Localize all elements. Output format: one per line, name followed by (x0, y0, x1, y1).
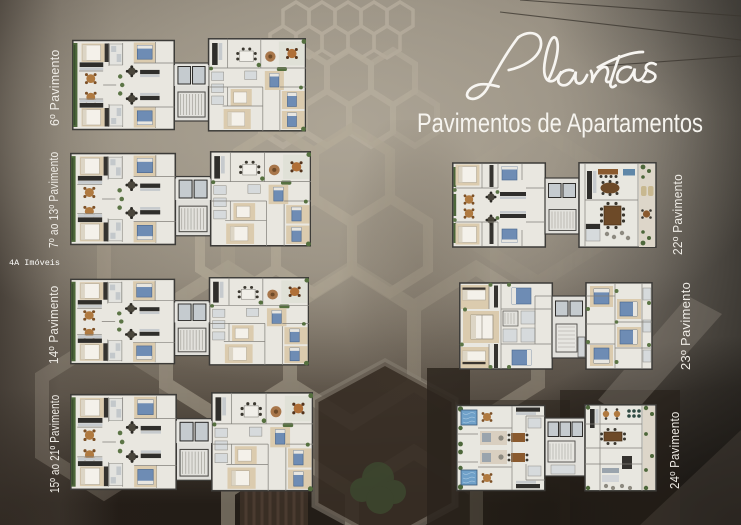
svg-text:Pavimentos de Apartamentos: Pavimentos de Apartamentos (417, 108, 703, 138)
